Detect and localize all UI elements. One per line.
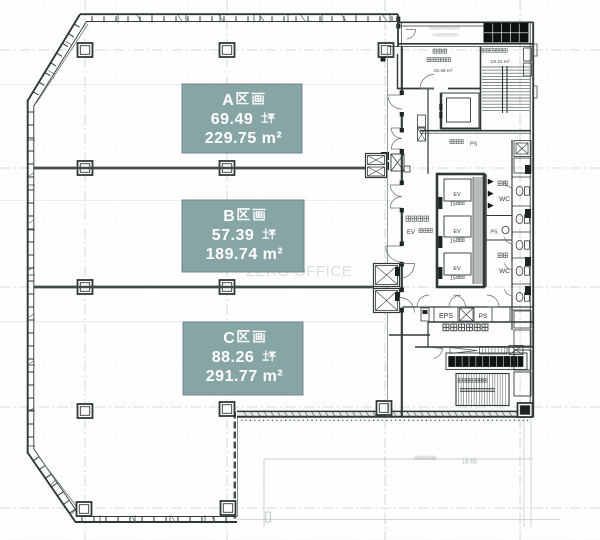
svg-text:PS: PS [490,230,498,236]
svg-text:88.26: 88.26 [212,349,255,366]
svg-text:EV: EV [453,192,461,198]
svg-text:15: 15 [450,202,456,208]
svg-text:B: B [223,208,235,225]
svg-text:15.46 m²: 15.46 m² [434,68,453,74]
svg-text:WC: WC [499,196,510,203]
svg-text:57.39: 57.39 [212,227,255,244]
svg-text:EPS: EPS [439,313,453,320]
svg-text:EV: EV [453,266,461,272]
svg-text:A: A [222,92,234,109]
svg-text:15: 15 [450,239,456,245]
svg-text:15: 15 [450,276,456,282]
svg-text:16.65: 16.65 [462,460,478,466]
svg-text:PS: PS [479,313,488,320]
svg-text:19.31 m²: 19.31 m² [491,59,510,65]
svg-text:EV: EV [453,229,461,235]
svg-text:C: C [223,330,235,347]
svg-text:PS: PS [470,142,478,148]
svg-text:229.75 m²: 229.75 m² [205,130,282,147]
svg-text:189.74 m²: 189.74 m² [206,246,283,263]
svg-text:291.77 m²: 291.77 m² [206,368,283,385]
svg-text:EV: EV [407,230,415,236]
svg-text:69.49: 69.49 [211,111,254,128]
